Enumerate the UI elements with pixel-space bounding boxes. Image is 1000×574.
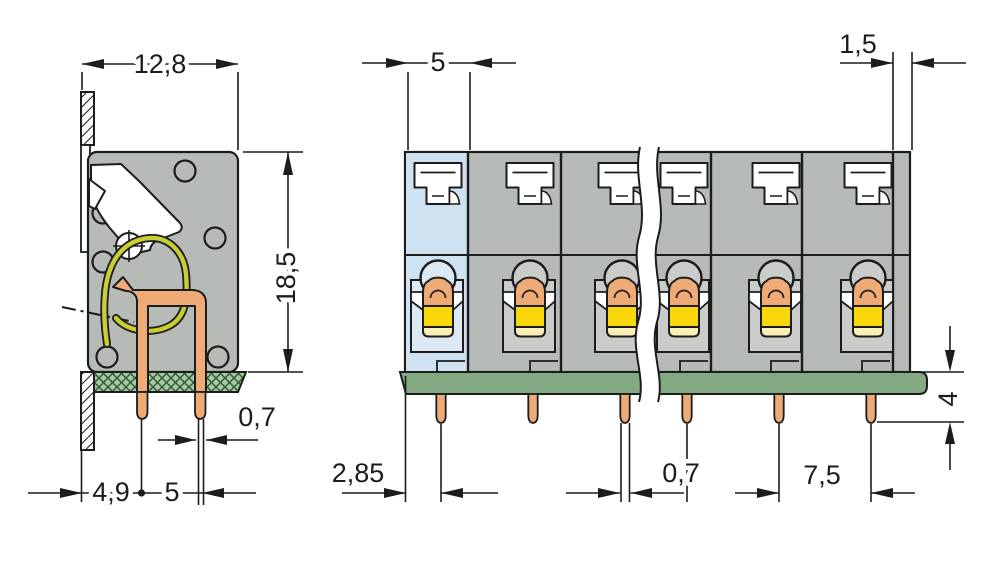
side-view: [62, 92, 246, 450]
solder-pin: [528, 394, 537, 423]
front-view: [400, 147, 927, 423]
dim-label-edge-to-pin: 2,85: [332, 458, 385, 488]
dim-label-height: 18,5: [271, 252, 301, 305]
dim-label-pin-length: 4: [933, 391, 963, 406]
dim-label-wall-to-pin: 4,9: [92, 477, 130, 507]
pcb-front: [400, 372, 927, 394]
solder-pin: [195, 392, 206, 419]
dim-label-pin-row-spacing: 5: [164, 477, 179, 507]
dim-label-pin-tip-width: 0,7: [238, 402, 276, 432]
dim-label-end-wall: 1,5: [839, 29, 877, 59]
dim-label-pin-width: 0,7: [662, 458, 700, 488]
solder-pin: [682, 394, 691, 423]
technical-drawing: 12,8 18,5 0,7 4,9 5 5 1,5 2,85 0,7 7,5 4: [0, 0, 1000, 574]
solder-pin: [620, 394, 629, 423]
mounting-wall-lower: [81, 372, 94, 450]
solder-pin: [774, 394, 783, 423]
solder-pin: [137, 392, 148, 419]
dim-label-pole-width: 5: [430, 47, 445, 77]
dim-label-pin-pitch: 7,5: [803, 460, 841, 490]
break-line: [636, 147, 661, 402]
pcb-side-section: [94, 372, 246, 392]
solder-pin: [866, 394, 875, 423]
mounting-wall-upper: [81, 92, 94, 145]
solder-pin: [436, 394, 445, 423]
dim-label-total-depth: 12,8: [134, 49, 187, 79]
